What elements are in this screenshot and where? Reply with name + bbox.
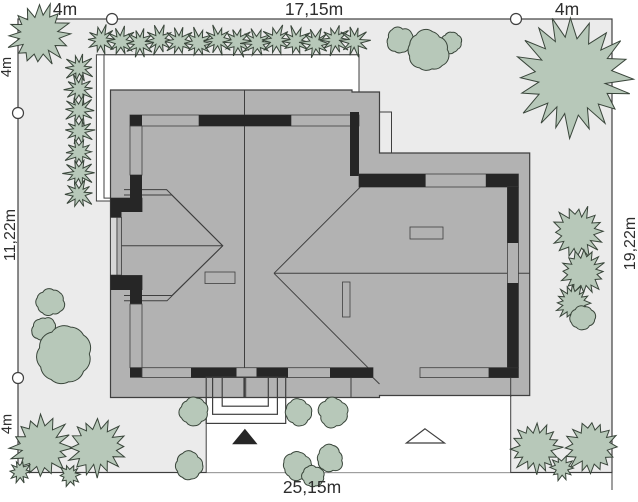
svg-text:4m: 4m: [555, 0, 579, 19]
svg-text:4m: 4m: [0, 57, 15, 77]
svg-text:17,15m: 17,15m: [285, 0, 343, 19]
svg-text:19,22m: 19,22m: [622, 217, 638, 270]
svg-text:4m: 4m: [0, 414, 16, 434]
svg-text:25,15m: 25,15m: [283, 477, 341, 497]
svg-text:11,22m: 11,22m: [2, 209, 19, 261]
svg-text:4m: 4m: [53, 0, 77, 19]
